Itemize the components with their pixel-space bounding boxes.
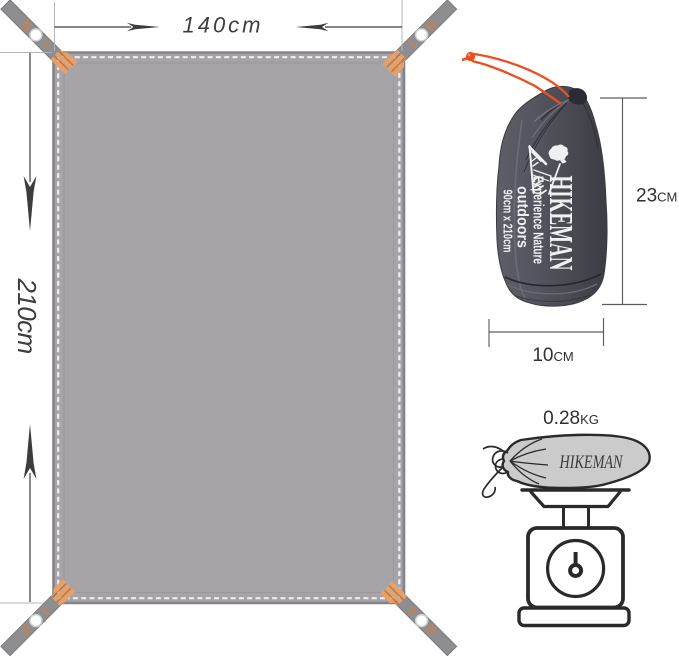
svg-text:0.28KG: 0.28KG <box>543 408 599 429</box>
svg-text:HIKEMAN: HIKEMAN <box>559 453 624 473</box>
svg-text:23CM: 23CM <box>636 186 677 207</box>
svg-text:210cm: 210cm <box>12 277 42 353</box>
svg-text:10CM: 10CM <box>532 345 573 366</box>
svg-text:90cm x 210cm: 90cm x 210cm <box>501 190 516 253</box>
svg-text:140cm: 140cm <box>182 13 263 38</box>
svg-text:Experience Nature: Experience Nature <box>530 176 546 264</box>
svg-text:HIKEMAN: HIKEMAN <box>542 176 579 271</box>
